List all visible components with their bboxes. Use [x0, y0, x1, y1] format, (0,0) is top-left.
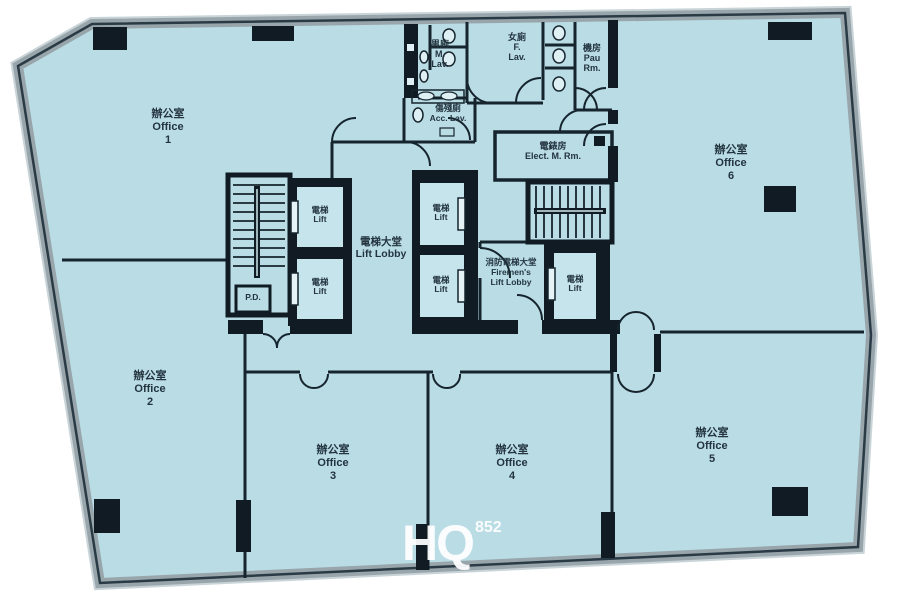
room-label-office-5: 辦公室Office5	[696, 427, 729, 466]
room-label-office-1: 辦公室Office1	[152, 108, 185, 147]
room-label-firemens-lift-lobby: 消防電梯大堂 Firemen's Lift Lobby	[485, 258, 536, 287]
room-label-pau-room: 機房 Pau Rm.	[583, 44, 601, 74]
room-label-accessible-lavatory: 傷殘廁 Acc. Lav.	[430, 104, 467, 124]
firemens-lift-label: 電梯Lift	[566, 275, 583, 294]
room-label-office-3: 辦公室Office3	[317, 444, 350, 483]
watermark-sub-text: 852	[475, 519, 502, 536]
watermark-logo: HQ852	[402, 518, 502, 568]
floor-plan-drawing	[0, 0, 900, 600]
room-label-female-lavatory: 女廁 F. Lav.	[508, 33, 526, 63]
floor-plan: 辦公室Office1 辦公室Office2 辦公室Office3 辦公室Offi…	[0, 0, 900, 600]
room-label-office-6: 辦公室Office6	[715, 144, 748, 183]
room-label-electrical-meter-room: 電錶房 Elect. M. Rm.	[525, 142, 581, 162]
room-label-lift-lobby: 電梯大堂Lift Lobby	[356, 236, 407, 261]
watermark-main-text: HQ	[402, 515, 473, 571]
room-label-office-4: 辦公室Office4	[496, 444, 529, 483]
pipe-duct-label: P.D.	[245, 292, 260, 302]
lift-label-4: 電梯Lift	[432, 276, 449, 295]
room-label-office-2: 辦公室Office2	[134, 370, 167, 409]
lift-label-3: 電梯Lift	[432, 204, 449, 223]
lift-label-1: 電梯Lift	[311, 206, 328, 225]
lift-label-2: 電梯Lift	[311, 278, 328, 297]
room-label-male-lavatory: 男廁 M. Lav.	[431, 40, 449, 70]
